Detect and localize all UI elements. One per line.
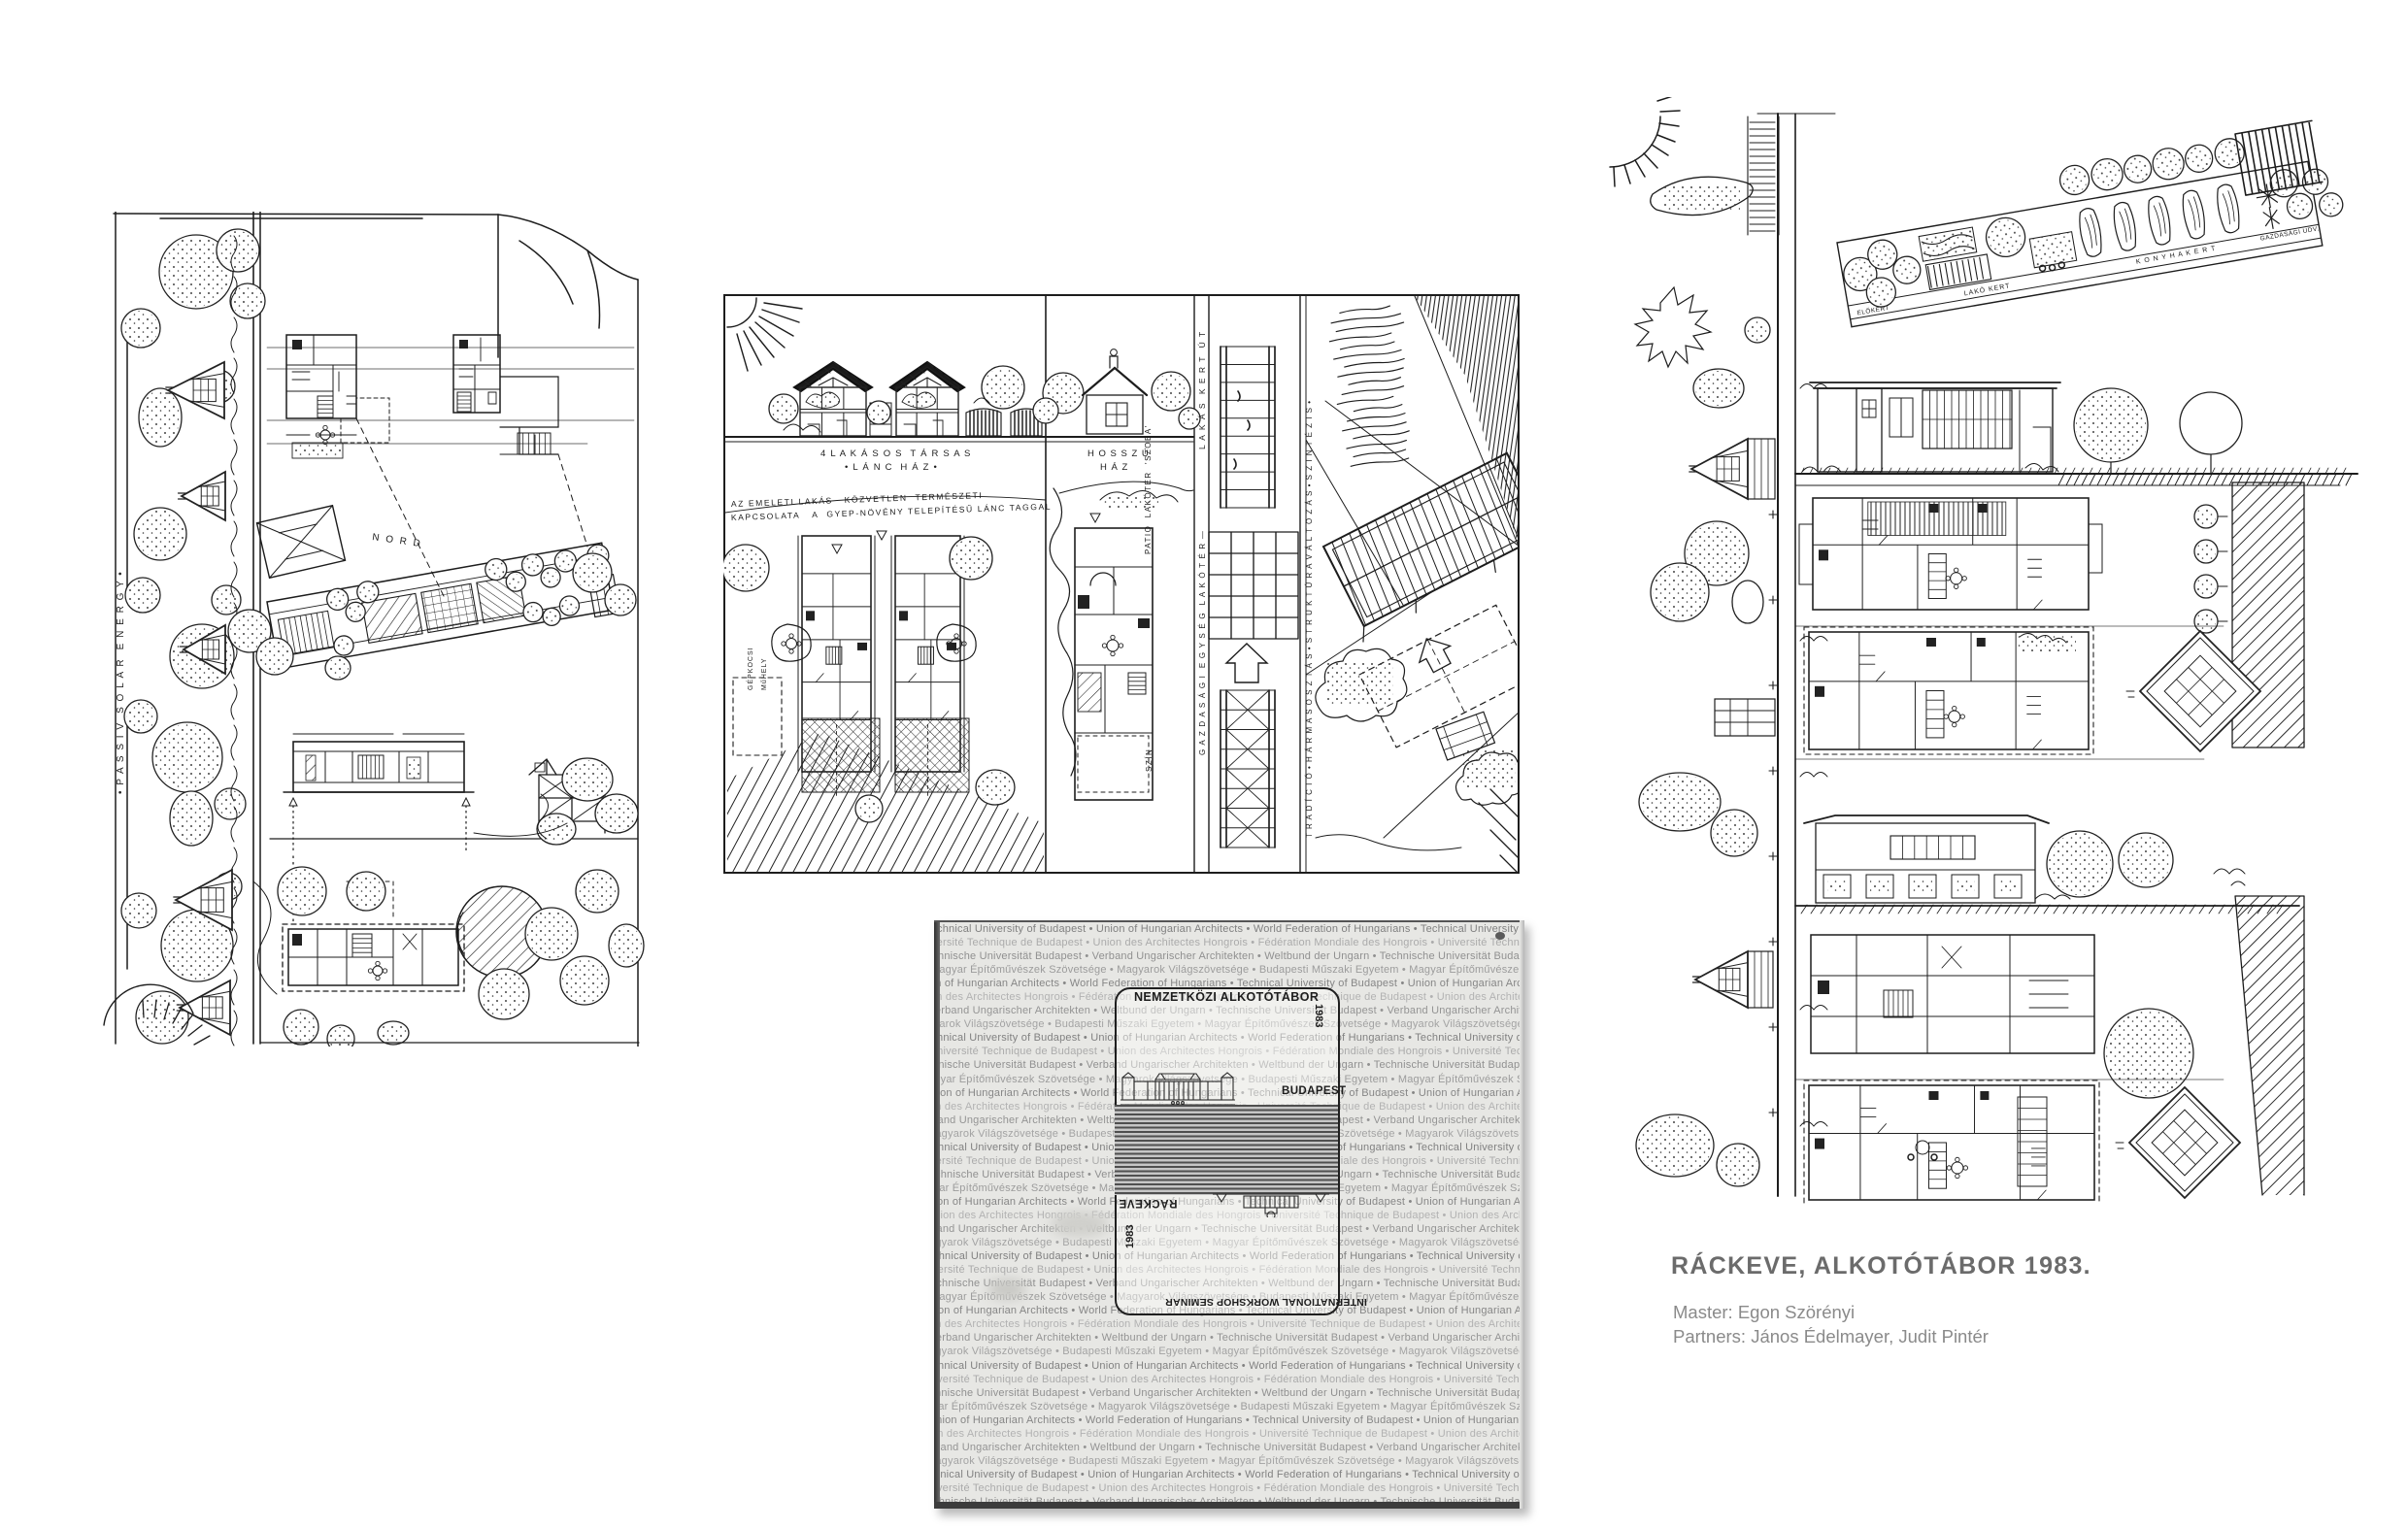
svg-text:LAKÓ KERT: LAKÓ KERT xyxy=(1963,281,2011,297)
svg-text:• P A S S I V S O L A R E N: • P A S S I V S O L A R E N E R G Y • xyxy=(116,571,126,794)
svg-text:H O S S Z Ú: H O S S Z Ú xyxy=(1087,449,1150,459)
svg-text:G A Z D A S Á G I E G Y S É G: G A Z D A S Á G I E G Y S É G L A K Ó T … xyxy=(1198,530,1207,755)
svg-text:N O R D: N O R D xyxy=(372,532,423,549)
svg-text:T R A D Í C I Ó • H Á R M A S: T R A D Í C I Ó • H Á R M A S O S Z T Á … xyxy=(1305,400,1314,838)
svg-text:SZÍN: SZÍN xyxy=(1145,748,1154,772)
svg-text:H Á Z: H Á Z xyxy=(1100,462,1128,473)
svg-text:L A K Á S K E R T Ú T: L A K Á S K E R T Ú T xyxy=(1197,330,1207,449)
svg-text:• L Á N C H Á Z •: • L Á N C H Á Z • xyxy=(845,462,938,473)
svg-text:MűHELY: MűHELY xyxy=(761,658,768,691)
svg-text:4 L A K Á S O S T Á R S A S: 4 L A K Á S O S T Á R S A S xyxy=(820,449,972,459)
svg-text:PATIO LAKÓTÉR 'SZOBA': PATIO LAKÓTÉR 'SZOBA' xyxy=(1144,424,1153,554)
svg-text:GÉPKOCSI: GÉPKOCSI xyxy=(746,647,754,690)
